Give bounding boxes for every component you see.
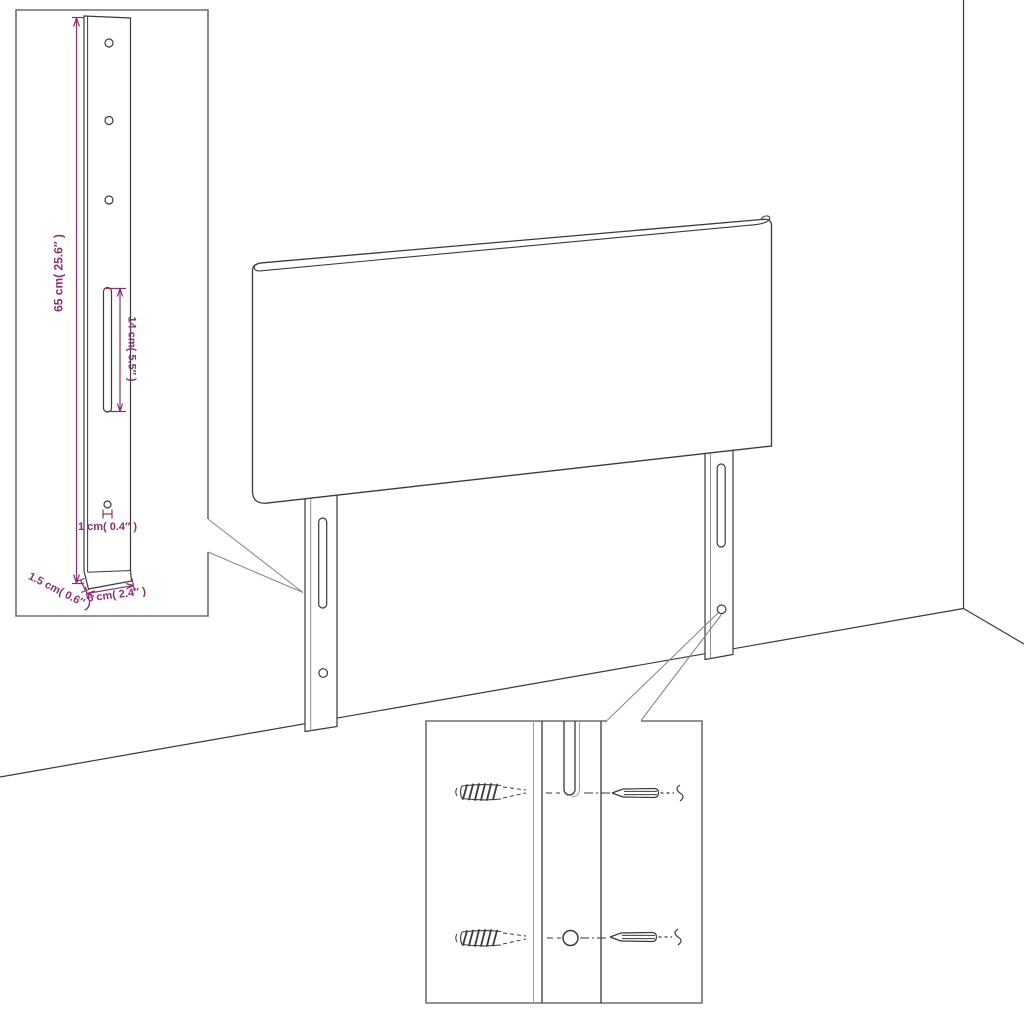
headboard-dimension-diagram: 65 cm( 25.6″ ) 14 cm( 5.5″ ) 1 cm( 0.4″ … [0,0,1024,1024]
callout-wedge-leg-detail [208,519,303,593]
headboard-leg-left [305,488,337,732]
bracket-hole-middle [105,117,113,125]
callout-wedge-mounting-detail [607,613,722,721]
leg-height-label: 65 cm( 25.6″ ) [52,234,66,312]
leg-detail-inset: 65 cm( 25.6″ ) 14 cm( 5.5″ ) 1 cm( 0.4″ … [16,10,208,616]
headboard-outline [253,219,772,503]
mounting-detail-inset [426,721,702,1003]
leg-right-slot [717,464,725,547]
hole-diameter-label: 1 cm( 0.4″ ) [78,521,137,533]
diagram-canvas: 65 cm( 25.6″ ) 14 cm( 5.5″ ) 1 cm( 0.4″ … [0,0,1024,1024]
slot-length-label: 14 cm( 5.5″ ) [126,316,138,382]
bracket-slot [104,288,112,413]
bracket-hole-top [105,39,113,47]
leg-right-hole [717,605,726,614]
bracket-hole-lower [105,196,113,204]
headboard-panel [253,216,772,503]
headboard-leg-right [705,439,733,660]
leg-left-hole [319,669,328,678]
floor-line-right [964,609,1024,645]
bracket-hole-small [104,501,111,508]
leg-left-slot [319,518,327,608]
